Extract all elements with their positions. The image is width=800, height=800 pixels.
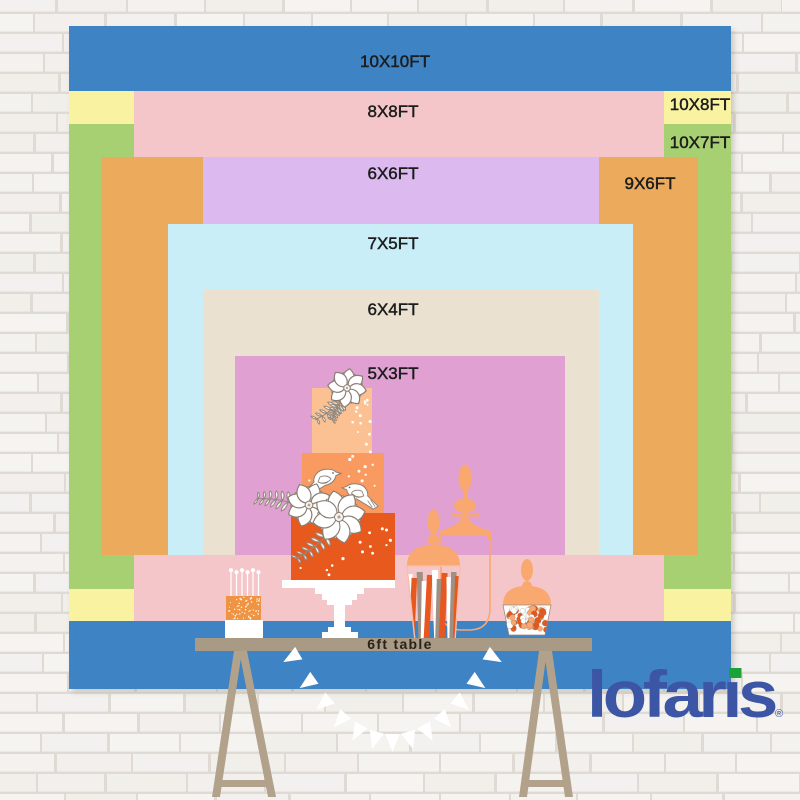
svg-text:7X5FT: 7X5FT [367, 234, 418, 253]
svg-text:lofarıs: lofarıs [587, 657, 776, 731]
svg-text:9X6FT: 9X6FT [624, 174, 675, 193]
svg-text:5X3FT: 5X3FT [367, 364, 418, 383]
svg-text:10X8FT: 10X8FT [670, 95, 730, 114]
svg-text:10X7FT: 10X7FT [670, 133, 730, 152]
svg-text:®: ® [775, 708, 783, 720]
svg-text:6X4FT: 6X4FT [367, 300, 418, 319]
svg-text:6X6FT: 6X6FT [367, 164, 418, 183]
svg-text:10X10FT: 10X10FT [360, 52, 430, 71]
svg-text:6ft table: 6ft table [367, 636, 432, 652]
svg-text:8X8FT: 8X8FT [367, 102, 418, 121]
